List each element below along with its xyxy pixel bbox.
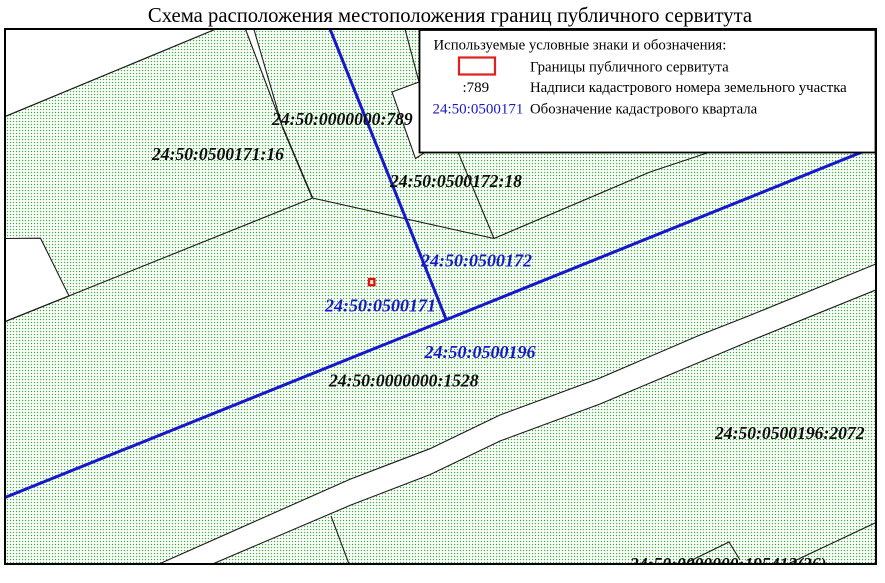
svg-text:24:50:0500171: 24:50:0500171 bbox=[433, 102, 524, 118]
svg-text:24:50:0500172: 24:50:0500172 bbox=[420, 251, 532, 271]
svg-text:24:50:0500171:16: 24:50:0500171:16 bbox=[151, 144, 284, 164]
svg-text:24:50:0000000:789: 24:50:0000000:789 bbox=[271, 109, 413, 129]
svg-text:Надписи кадастрового номера зе: Надписи кадастрового номера земельного у… bbox=[530, 80, 847, 96]
svg-text:Обозначение кадастрового кварт: Обозначение кадастрового квартала bbox=[530, 102, 758, 118]
svg-text:Используемые условные знаки и: Используемые условные знаки и обозначени… bbox=[434, 38, 727, 54]
svg-text:24:50:0500171: 24:50:0500171 bbox=[324, 296, 436, 316]
svg-text:Границы публичного сервитута: Границы публичного сервитута bbox=[530, 60, 729, 76]
svg-text::789: :789 bbox=[463, 80, 490, 96]
svg-text:24:50:0500196:2072: 24:50:0500196:2072 bbox=[714, 423, 865, 443]
svg-text:24:50:0500172:18: 24:50:0500172:18 bbox=[389, 171, 522, 191]
svg-text:24:50:0000000:1528: 24:50:0000000:1528 bbox=[328, 371, 479, 391]
svg-text:Схема расположения местоположе: Схема расположения местоположения границ… bbox=[148, 5, 752, 27]
svg-text:24:50:0500196: 24:50:0500196 bbox=[424, 342, 536, 362]
